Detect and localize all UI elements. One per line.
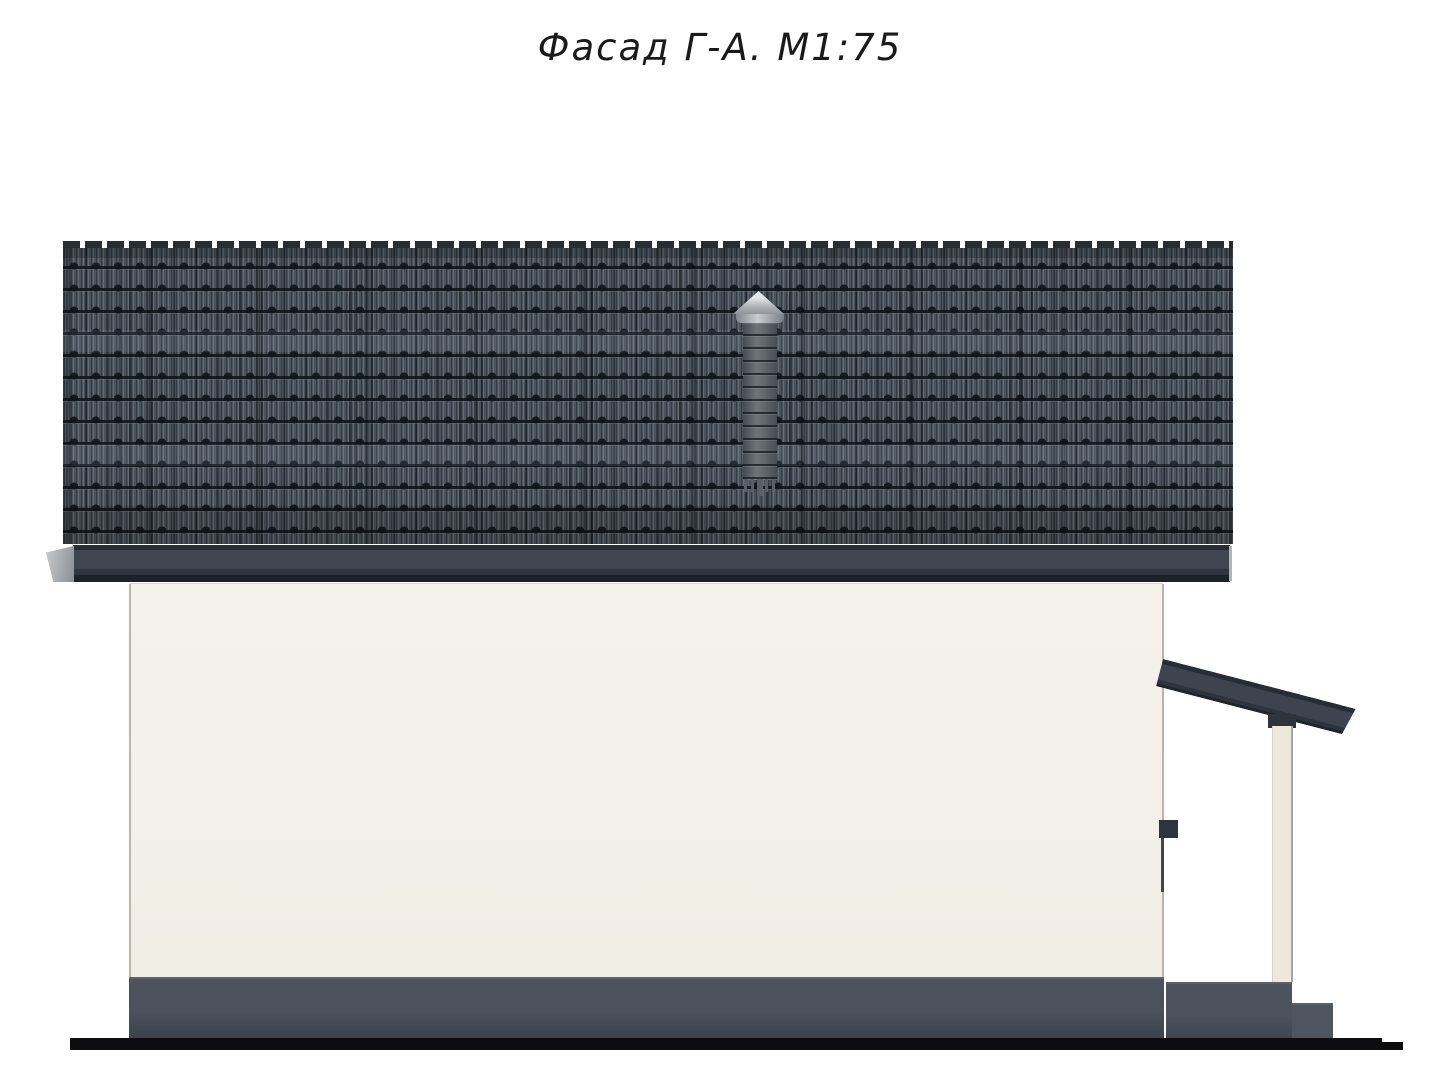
roof-tiles: [63, 248, 1233, 544]
roof-fascia: [73, 545, 1230, 582]
fascia-edge-right: [1229, 546, 1232, 581]
page-title: Фасад Г-А. М1:75: [0, 26, 1440, 69]
fascia-end-cap-left: [46, 546, 74, 582]
porch-roof: [1156, 659, 1356, 736]
porch-step: [1292, 1003, 1333, 1038]
chimney-flashing-tooth: [757, 479, 763, 496]
ground-line: [70, 1038, 1382, 1050]
house-wall: [130, 584, 1163, 977]
wall-edge-shadow-strip: [1161, 838, 1164, 892]
porch-post: [1272, 726, 1293, 982]
chimney-collar: [736, 314, 784, 323]
plinth: [129, 977, 1164, 1038]
wall-mounted-bracket: [1159, 820, 1178, 838]
wall-corner-left: [129, 584, 131, 977]
chimney-pipe: [743, 323, 777, 480]
elevation-drawing: Фасад Г-А. М1:75: [0, 0, 1440, 1080]
ground-line-extension: [1382, 1042, 1403, 1050]
porch-deck: [1166, 982, 1292, 1038]
wall-corner-right: [1162, 584, 1164, 977]
